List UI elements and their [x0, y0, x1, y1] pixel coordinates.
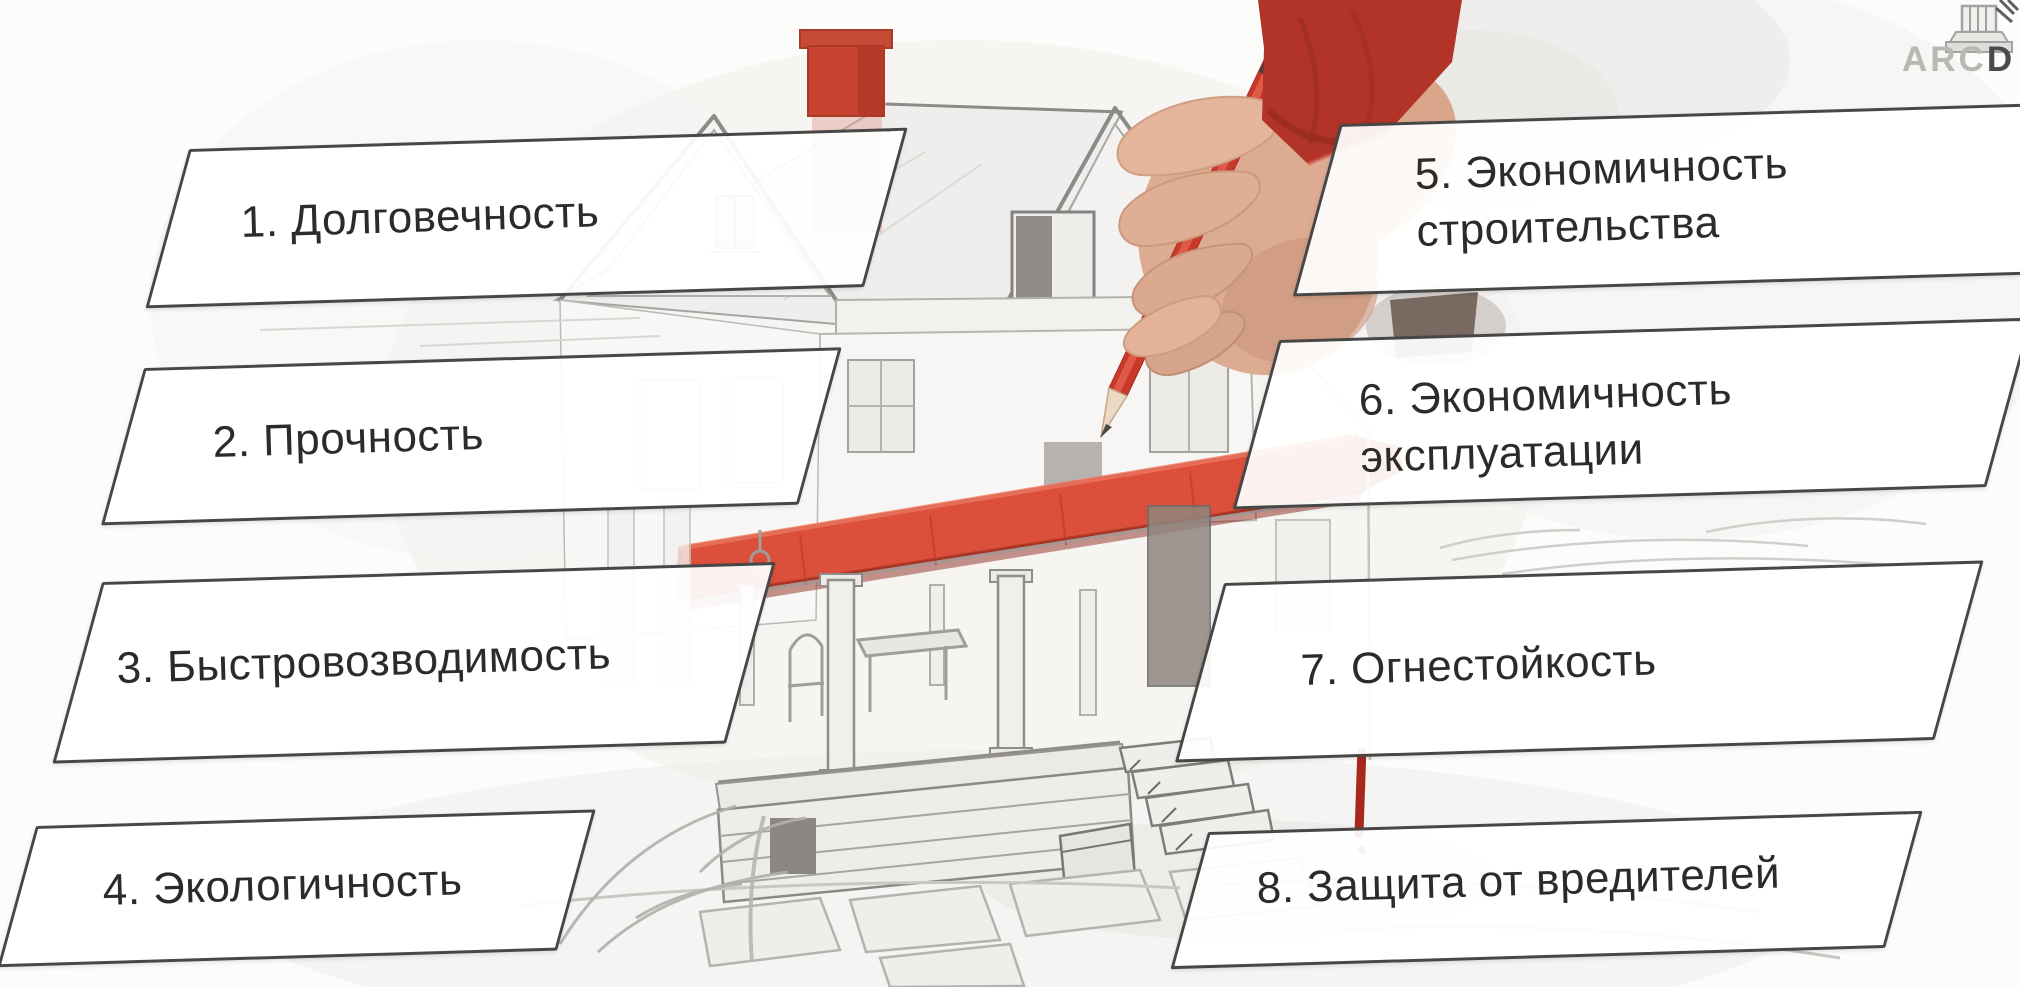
criteria-label-1: 1. Долговечность [240, 187, 600, 248]
dark-window [1148, 506, 1210, 686]
infographic-canvas: 1. Долговечность 2. Прочность 3. Быстров… [0, 0, 2020, 987]
watermark-light: ARC [1902, 40, 1987, 79]
criteria-label-5: 5. Экономичность строительства [1414, 131, 1917, 260]
watermark: ARCD [1902, 40, 2015, 80]
watermark-dark: D [1987, 40, 2015, 79]
criteria-label-4: 4. Экологичность [102, 855, 463, 916]
criteria-label-2: 2. Прочность [212, 410, 485, 469]
criteria-label-7: 7. Огнестойкость [1300, 635, 1657, 696]
criteria-label-6: 6. Экономичность эксплуатации [1358, 357, 1861, 486]
